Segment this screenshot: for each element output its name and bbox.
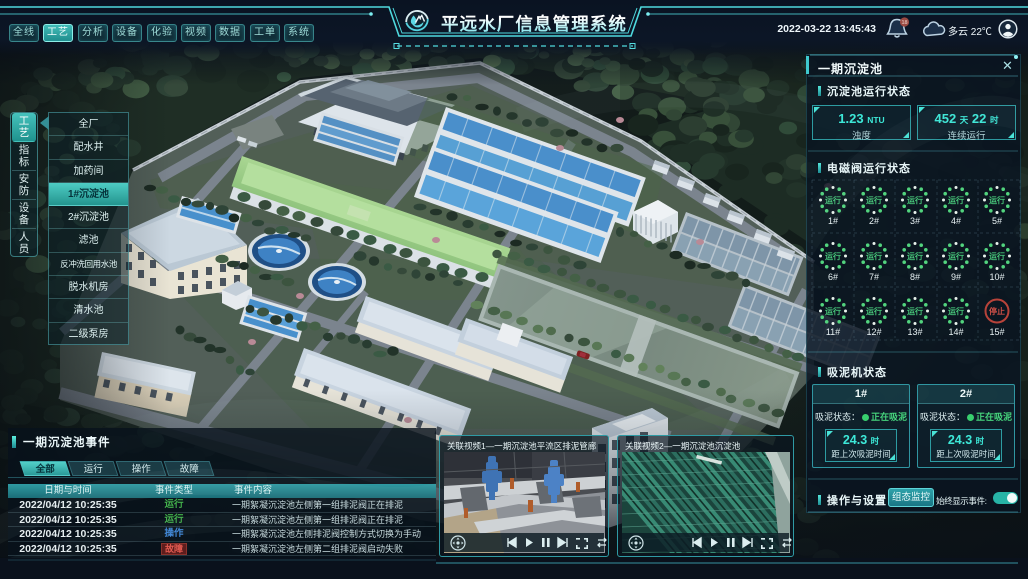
svg-text:运行: 运行 <box>866 195 882 205</box>
svg-text:运行: 运行 <box>907 306 923 316</box>
svg-text:7#: 7# <box>869 272 879 282</box>
svg-text:4#: 4# <box>951 216 961 226</box>
svg-text:运行: 运行 <box>989 195 1005 205</box>
svg-text:14#: 14# <box>948 327 963 337</box>
svg-text:18: 18 <box>901 20 907 26</box>
svg-text:1#: 1# <box>828 216 838 226</box>
svg-text:3#: 3# <box>910 216 920 226</box>
svg-text:运行: 运行 <box>907 251 923 261</box>
svg-text:11#: 11# <box>826 327 840 337</box>
svg-text:运行: 运行 <box>907 195 923 205</box>
svg-text:停止: 停止 <box>989 306 1005 316</box>
svg-text:12#: 12# <box>866 327 881 337</box>
svg-text:运行: 运行 <box>825 195 841 205</box>
svg-text:10#: 10# <box>989 272 1004 282</box>
svg-text:运行: 运行 <box>989 251 1005 261</box>
svg-text:9#: 9# <box>951 272 961 282</box>
svg-text:运行: 运行 <box>866 306 882 316</box>
svg-text:运行: 运行 <box>825 251 841 261</box>
svg-text:8#: 8# <box>910 272 920 282</box>
svg-text:15#: 15# <box>989 327 1004 337</box>
svg-text:5#: 5# <box>992 216 1002 226</box>
svg-text:运行: 运行 <box>825 306 841 316</box>
svg-text:运行: 运行 <box>948 306 964 316</box>
svg-text:运行: 运行 <box>948 195 964 205</box>
svg-text:13#: 13# <box>907 327 922 337</box>
svg-text:运行: 运行 <box>866 251 882 261</box>
svg-text:2#: 2# <box>869 216 879 226</box>
svg-text:6#: 6# <box>828 272 838 282</box>
svg-text:运行: 运行 <box>948 251 964 261</box>
